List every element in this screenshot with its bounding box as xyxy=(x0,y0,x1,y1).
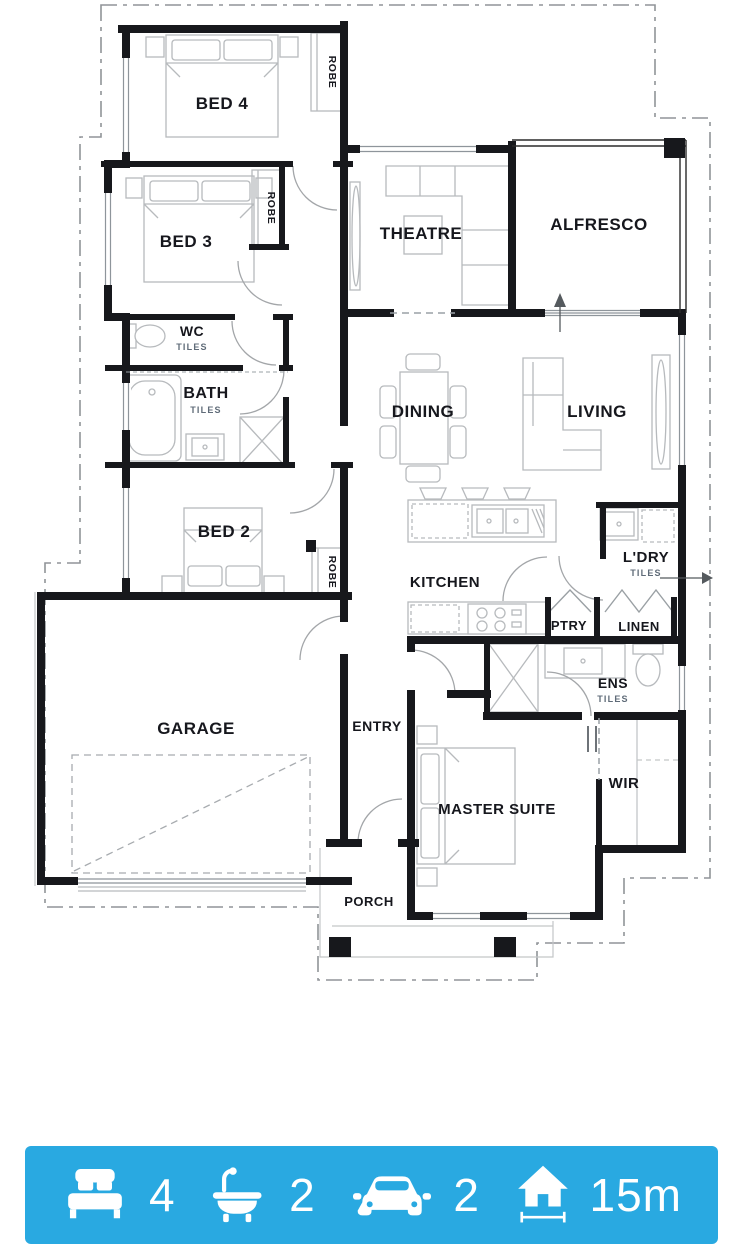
car-icon xyxy=(351,1169,433,1221)
bathrooms-count: 2 xyxy=(289,1172,316,1218)
room-label-living: LIVING xyxy=(567,402,627,421)
room-label-wir: WIR xyxy=(609,775,640,792)
room-label-ptry: PTRY xyxy=(551,618,587,633)
room-label-bed3: BED 3 xyxy=(160,232,213,251)
stat-cars: 2 xyxy=(351,1169,480,1221)
room-label-bed2: BED 2 xyxy=(198,522,251,541)
alfresco-column xyxy=(664,138,685,158)
porch-columns xyxy=(329,937,516,957)
frontage-value: 15m xyxy=(590,1172,682,1218)
room-label-wc: WC xyxy=(180,323,204,339)
room-label-garage: GARAGE xyxy=(157,719,235,738)
bed-icon xyxy=(61,1169,129,1221)
stat-bedrooms: 4 xyxy=(61,1169,176,1221)
bath-icon xyxy=(211,1166,269,1224)
floor-plan: BED 4 BED 3 WC TILES BATH TILES BED 2 GA… xyxy=(0,0,742,1140)
house-frontage-icon xyxy=(516,1164,570,1226)
room-label-dining: DINING xyxy=(392,402,455,421)
room-label-ens: ENS xyxy=(598,675,628,691)
robe-label-bed2: ROBE xyxy=(326,556,338,589)
room-label-master: MASTER SUITE xyxy=(438,801,556,818)
floorplan-page: BED 4 BED 3 WC TILES BATH TILES BED 2 GA… xyxy=(0,0,742,1259)
cars-count: 2 xyxy=(453,1172,480,1218)
bedrooms-count: 4 xyxy=(149,1172,176,1218)
room-label-entry: ENTRY xyxy=(352,718,402,734)
robe-label-bed3: ROBE xyxy=(265,192,277,225)
room-label-ldry: L'DRY xyxy=(623,549,669,566)
room-label-linen: LINEN xyxy=(618,619,660,634)
room-label-alfresco: ALFRESCO xyxy=(550,215,648,234)
room-label-bed4: BED 4 xyxy=(196,94,249,113)
room-label-bath: BATH xyxy=(183,385,228,402)
room-label-porch: PORCH xyxy=(344,894,393,909)
robe-label-bed4: ROBE xyxy=(326,56,338,89)
bifold-doors xyxy=(549,590,673,612)
stat-frontage: 15m xyxy=(516,1164,682,1226)
finish-label-wc-tiles: TILES xyxy=(176,342,208,352)
stat-bathrooms: 2 xyxy=(211,1166,316,1224)
property-stats-bar: 4 2 xyxy=(25,1146,718,1244)
finish-label-bath-tiles: TILES xyxy=(190,405,222,415)
finish-label-ldry-tiles: TILES xyxy=(630,568,662,578)
room-label-kitchen: KITCHEN xyxy=(410,574,480,591)
finish-label-ens-tiles: TILES xyxy=(597,694,629,704)
room-label-theatre: THEATRE xyxy=(380,224,463,243)
